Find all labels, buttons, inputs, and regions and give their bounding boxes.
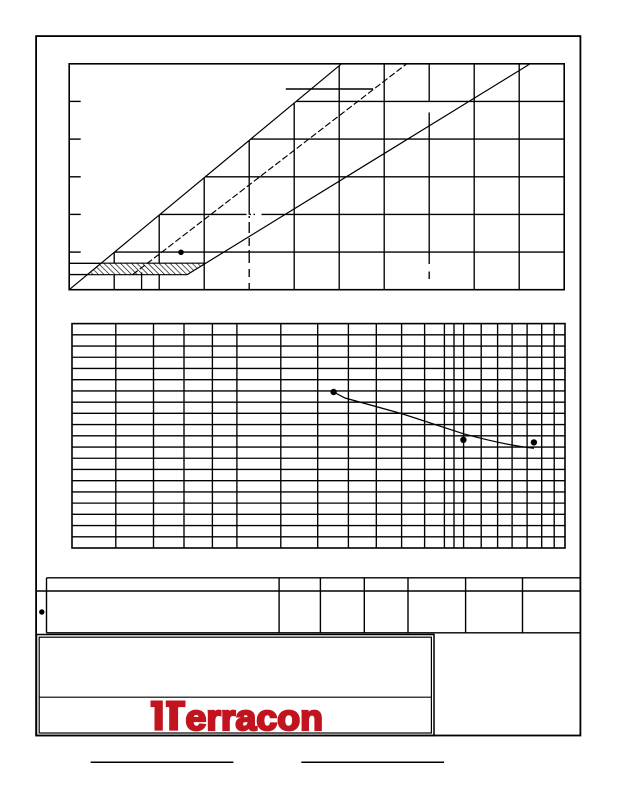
svg-text:erracon: erracon xyxy=(186,697,324,738)
